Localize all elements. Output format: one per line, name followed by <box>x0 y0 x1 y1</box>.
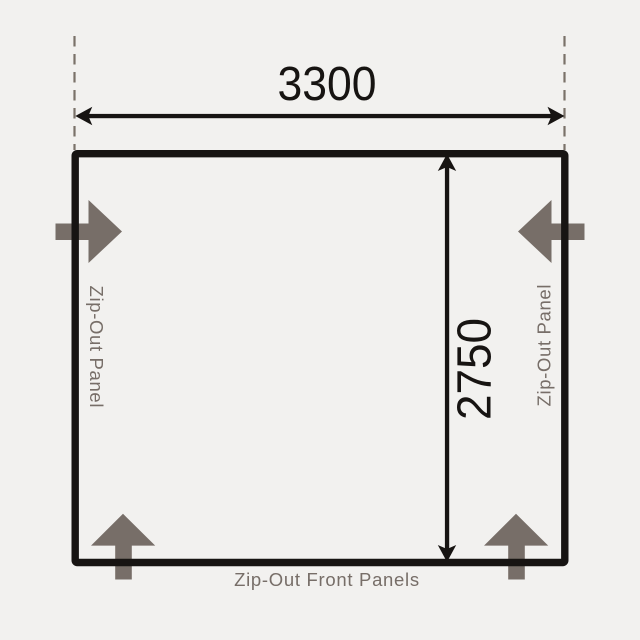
svg-text:2750: 2750 <box>449 318 502 420</box>
svg-text:Zip-Out Panel: Zip-Out Panel <box>86 286 107 408</box>
svg-text:Zip-Out Front Panels: Zip-Out Front Panels <box>234 569 419 590</box>
svg-text:Zip-Out Panel: Zip-Out Panel <box>534 285 555 407</box>
svg-text:3300: 3300 <box>278 58 377 111</box>
